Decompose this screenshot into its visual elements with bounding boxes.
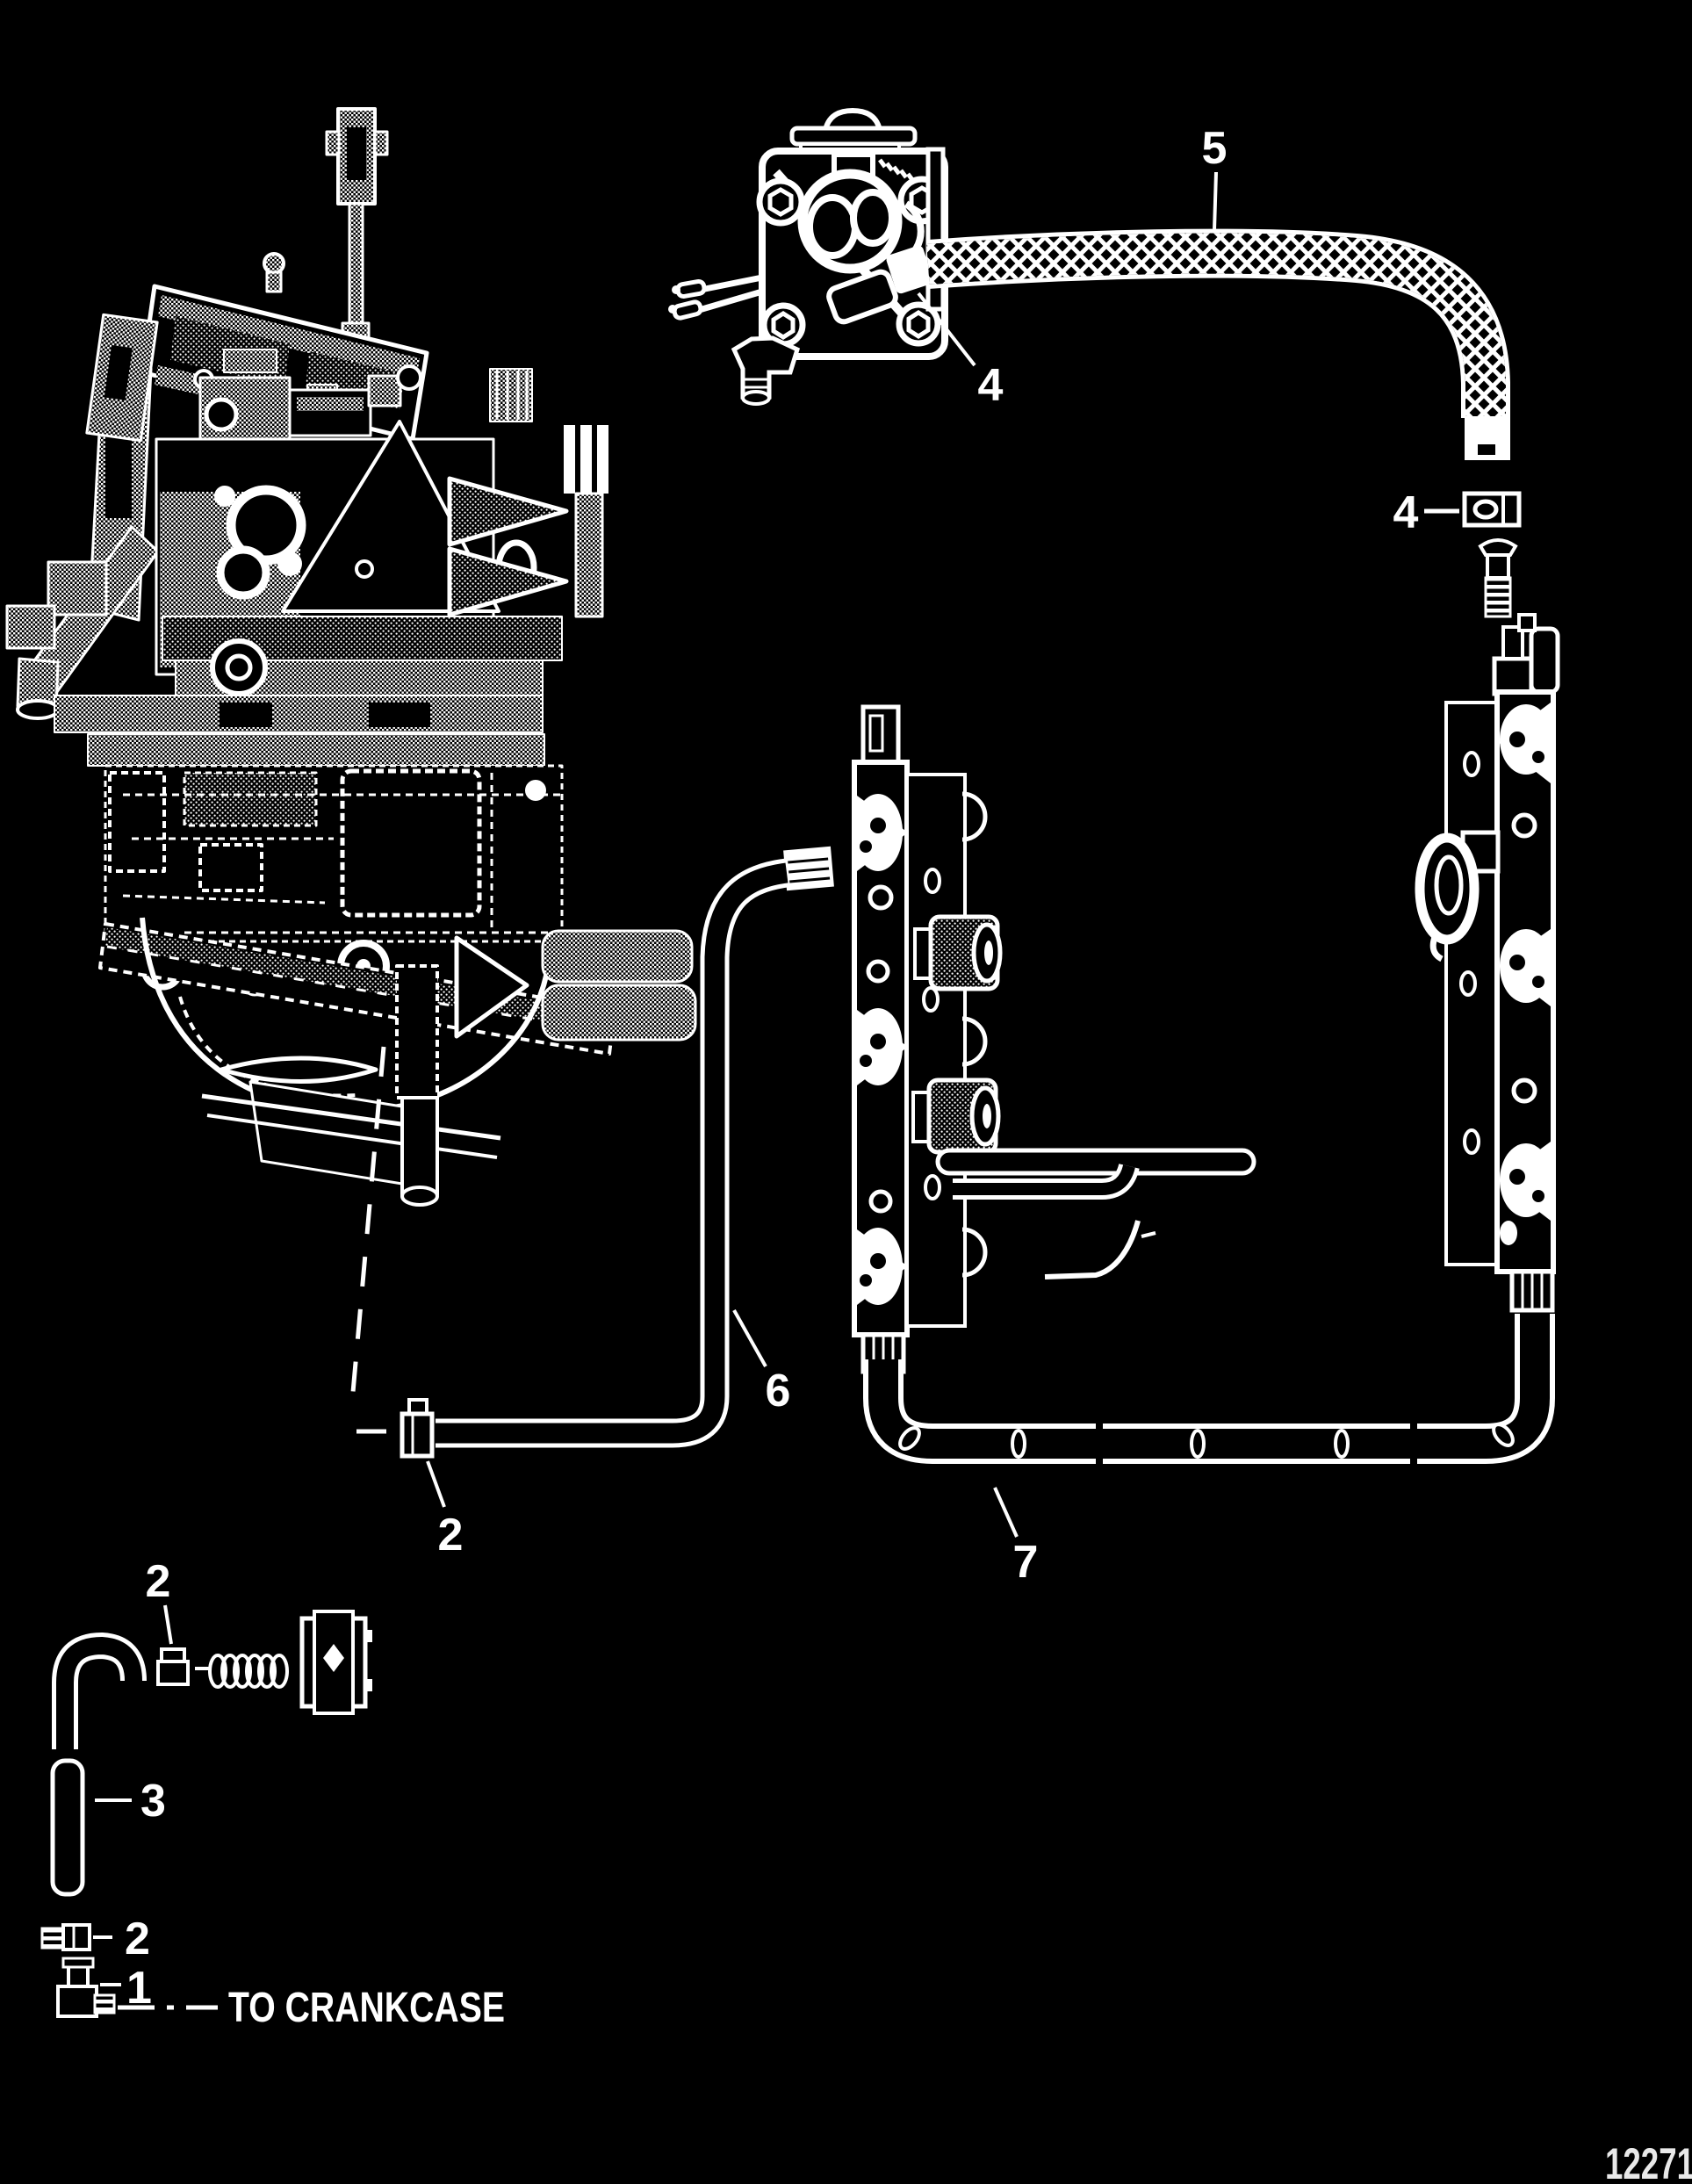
svg-text:TO CRANKCASE: TO CRANKCASE	[228, 1985, 505, 2031]
svg-text:1: 1	[126, 1963, 152, 2014]
svg-text:12271: 12271	[1605, 2139, 1692, 2184]
svg-text:7: 7	[1013, 1537, 1039, 1588]
svg-text:2: 2	[438, 1510, 464, 1561]
svg-text:5: 5	[1202, 123, 1228, 174]
svg-text:4: 4	[978, 360, 1004, 411]
svg-text:4: 4	[1393, 487, 1419, 538]
svg-text:2: 2	[125, 1914, 150, 1964]
svg-text:6: 6	[766, 1366, 791, 1416]
svg-text:2: 2	[146, 1556, 171, 1607]
svg-text:3: 3	[140, 1776, 166, 1827]
